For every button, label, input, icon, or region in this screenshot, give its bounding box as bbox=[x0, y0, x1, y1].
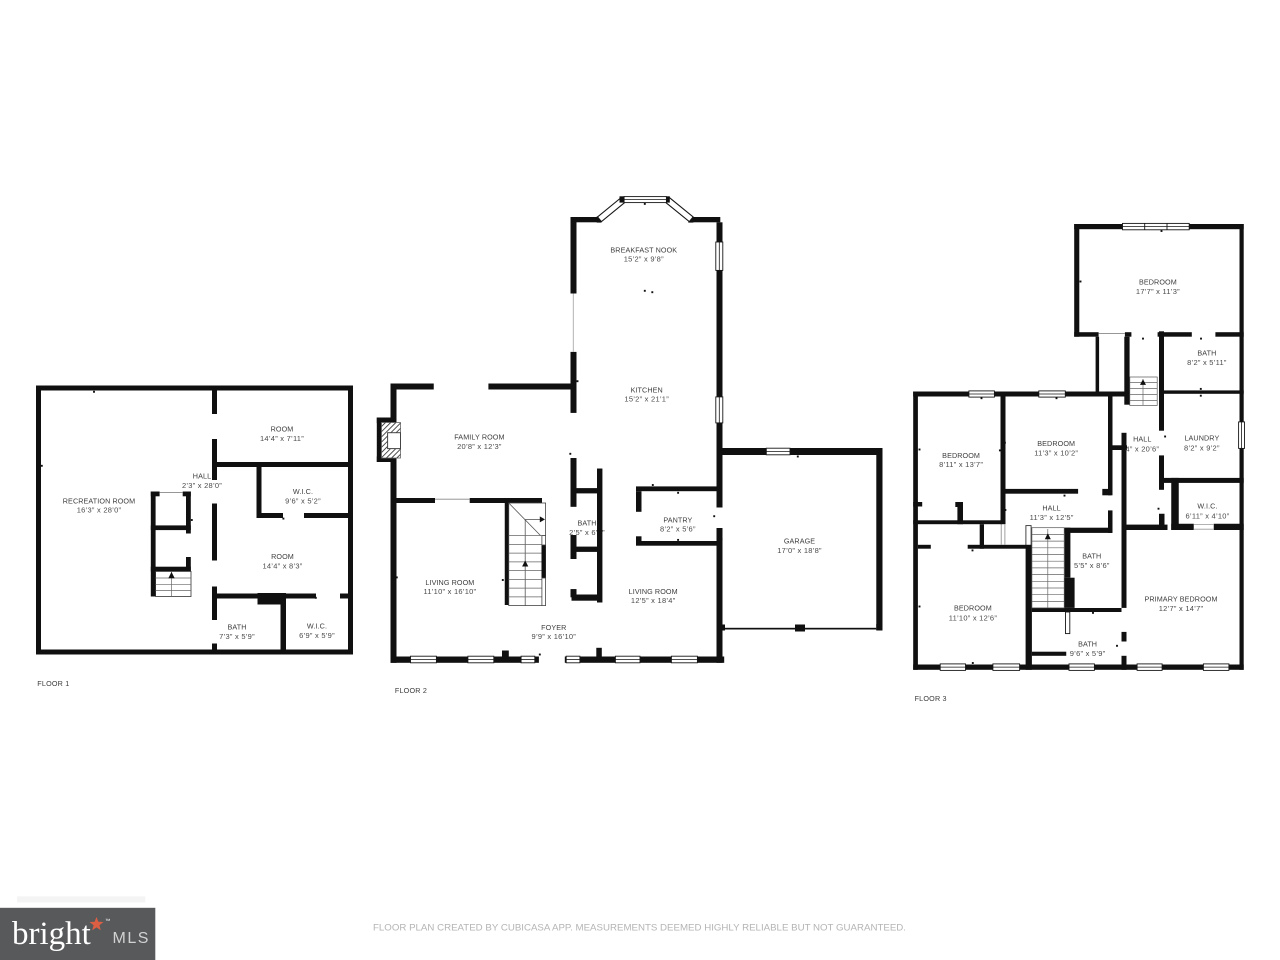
svg-text:GARAGE: GARAGE bbox=[784, 537, 815, 546]
svg-text:BATH: BATH bbox=[1082, 551, 1101, 560]
svg-text:FOYER: FOYER bbox=[541, 623, 566, 632]
svg-text:W.I.C.: W.I.C. bbox=[307, 622, 327, 631]
svg-text:FLOOR PLAN CREATED BY CUBICASA: FLOOR PLAN CREATED BY CUBICASA APP. MEAS… bbox=[373, 923, 906, 934]
svg-text:W.I.C.: W.I.C. bbox=[293, 487, 313, 496]
svg-text:ROOM: ROOM bbox=[271, 552, 294, 561]
svg-text:11’10” x 16’10”: 11’10” x 16’10” bbox=[423, 587, 476, 596]
svg-text:20’8” x 12’3”: 20’8” x 12’3” bbox=[457, 442, 502, 451]
svg-text:LIVING ROOM: LIVING ROOM bbox=[425, 578, 474, 587]
svg-text:BEDROOM: BEDROOM bbox=[1037, 439, 1075, 448]
svg-text:RECREATION ROOM: RECREATION ROOM bbox=[63, 497, 135, 506]
svg-text:LIVING ROOM: LIVING ROOM bbox=[629, 587, 678, 596]
svg-text:FAMILY ROOM: FAMILY ROOM bbox=[454, 433, 504, 442]
svg-text:FLOOR 1: FLOOR 1 bbox=[37, 679, 69, 688]
svg-text:BATH: BATH bbox=[1197, 348, 1216, 357]
svg-text:6’11” x 4’10”: 6’11” x 4’10” bbox=[1186, 512, 1230, 521]
svg-text:15’2” x 9’8”: 15’2” x 9’8” bbox=[624, 254, 664, 263]
svg-text:ROOM: ROOM bbox=[271, 425, 294, 434]
svg-text:9’6” x 5’2”: 9’6” x 5’2” bbox=[285, 496, 321, 505]
svg-text:8’11” x 13’7”: 8’11” x 13’7” bbox=[939, 460, 983, 469]
svg-text:™: ™ bbox=[105, 919, 111, 925]
svg-text:4” x 20’6”: 4” x 20’6” bbox=[1125, 444, 1159, 453]
svg-text:BEDROOM: BEDROOM bbox=[942, 451, 980, 460]
svg-text:BEDROOM: BEDROOM bbox=[1139, 278, 1177, 287]
svg-text:15’2” x 21’1”: 15’2” x 21’1” bbox=[624, 395, 669, 404]
svg-text:12’5” x 18’4”: 12’5” x 18’4” bbox=[631, 596, 676, 605]
svg-text:BREAKFAST NOOK: BREAKFAST NOOK bbox=[610, 245, 677, 254]
svg-text:17’0” x 18’8”: 17’0” x 18’8” bbox=[777, 546, 822, 555]
svg-text:HALL: HALL bbox=[1042, 503, 1060, 512]
svg-text:BATH: BATH bbox=[1078, 639, 1097, 648]
svg-text:14’4” x 7’11”: 14’4” x 7’11” bbox=[260, 434, 304, 443]
svg-text:2’3” x 28’0”: 2’3” x 28’0” bbox=[182, 481, 222, 490]
svg-text:BATH: BATH bbox=[577, 519, 596, 528]
svg-text:6’9” x 5’9”: 6’9” x 5’9” bbox=[299, 631, 335, 640]
svg-text:17’7” x 11’3”: 17’7” x 11’3” bbox=[1136, 287, 1180, 296]
svg-text:14’4” x 8’3”: 14’4” x 8’3” bbox=[262, 561, 302, 570]
svg-text:BATH: BATH bbox=[227, 623, 246, 632]
svg-text:FLOOR 3: FLOOR 3 bbox=[915, 694, 947, 703]
svg-text:LAUNDRY: LAUNDRY bbox=[1184, 434, 1219, 443]
svg-text:12’7” x 14’7”: 12’7” x 14’7” bbox=[1159, 604, 1204, 613]
svg-text:8’2” x 5’11”: 8’2” x 5’11” bbox=[1187, 358, 1227, 367]
svg-text:9’6” x 5’9”: 9’6” x 5’9” bbox=[1070, 649, 1106, 658]
svg-text:W.I.C.: W.I.C. bbox=[1197, 502, 1217, 511]
svg-text:HALL: HALL bbox=[1133, 434, 1151, 443]
svg-text:KITCHEN: KITCHEN bbox=[631, 386, 663, 395]
svg-text:11’10” x 12’6”: 11’10” x 12’6” bbox=[949, 613, 998, 622]
svg-text:5’5” x 8’6”: 5’5” x 8’6” bbox=[1074, 561, 1110, 570]
svg-text:BEDROOM: BEDROOM bbox=[954, 604, 992, 613]
svg-text:8’2” x 9’2”: 8’2” x 9’2” bbox=[1184, 444, 1220, 453]
svg-text:11’3” x 12’5”: 11’3” x 12’5” bbox=[1030, 513, 1074, 522]
svg-text:PANTRY: PANTRY bbox=[663, 515, 692, 524]
svg-text:MLS: MLS bbox=[113, 930, 150, 947]
svg-text:7’3” x 5’9”: 7’3” x 5’9” bbox=[219, 632, 255, 641]
svg-text:HALL: HALL bbox=[193, 472, 211, 481]
svg-text:8’2” x 5’6”: 8’2” x 5’6” bbox=[660, 525, 696, 534]
svg-text:bright: bright bbox=[12, 916, 91, 952]
svg-text:9’9” x 16’10”: 9’9” x 16’10” bbox=[532, 632, 577, 641]
svg-text:11’3” x 10’2”: 11’3” x 10’2” bbox=[1034, 449, 1078, 458]
svg-text:16’3” x 28’0”: 16’3” x 28’0” bbox=[77, 506, 122, 515]
svg-text:FLOOR 2: FLOOR 2 bbox=[395, 686, 427, 695]
svg-text:PRIMARY BEDROOM: PRIMARY BEDROOM bbox=[1144, 595, 1217, 604]
